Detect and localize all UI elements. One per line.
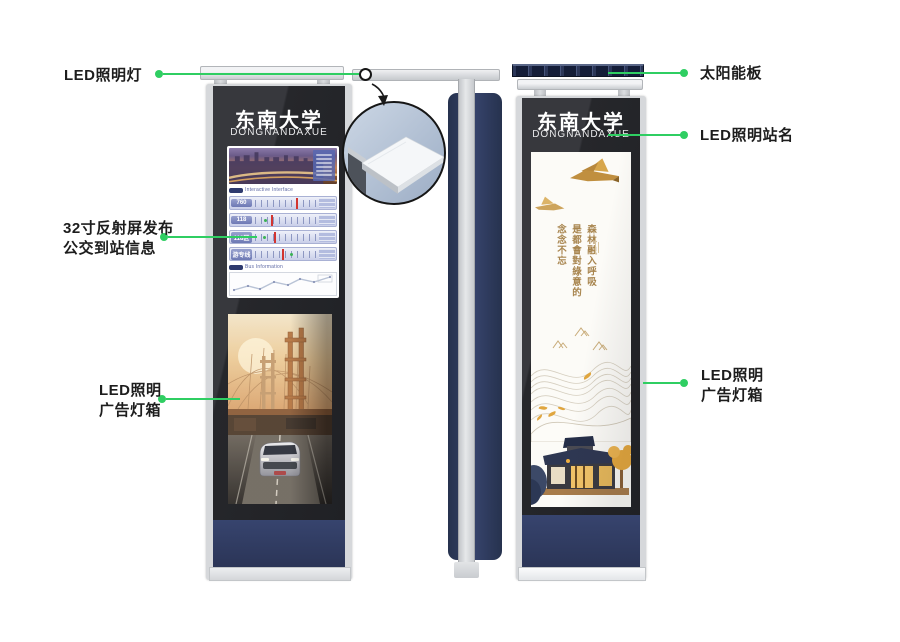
led-panel-illustration — [344, 103, 446, 205]
label-solar: 太阳能板 — [700, 64, 762, 84]
caption-mark — [595, 238, 596, 254]
section-badge — [229, 188, 243, 193]
bus-info-screen: Interactive Interface 760 118 118区 游专线 B… — [227, 146, 339, 298]
bridge-car-ad-image — [228, 314, 332, 504]
solar-panel — [512, 64, 644, 77]
route-number: 760 — [231, 199, 252, 207]
route-detail-box — [319, 249, 335, 259]
label-ad-lightbox-right: LED照明 广告灯箱 — [701, 366, 764, 406]
route-row: 118 — [229, 213, 337, 227]
section-badge — [229, 265, 243, 270]
label-ad-lightbox-left: LED照明 广告灯箱 — [99, 381, 162, 421]
label-station-name: LED照明站名 — [700, 126, 794, 146]
calligraphy-text: 森林融入呼吸 是都會對綠意的 念念不忘 — [552, 224, 597, 304]
route-stops-track — [255, 251, 316, 258]
right-pillar-plinth — [518, 567, 646, 581]
screen-sidebar-menu — [313, 150, 335, 181]
route-map — [229, 272, 337, 296]
leader-dot — [680, 379, 688, 387]
leader-line — [608, 72, 684, 74]
leader-dot — [155, 70, 163, 78]
leader-line — [163, 73, 359, 75]
left-pillar-plinth — [209, 567, 351, 581]
origami-bird-icon — [569, 158, 619, 190]
pole-crossbar — [352, 69, 500, 81]
bus-stop-design-diagram: 东南大学 DONGNANDAXUE Interactive Interface … — [0, 0, 900, 642]
leader-line — [608, 134, 684, 136]
route-stops-track — [255, 217, 316, 224]
pole — [458, 79, 475, 578]
caption-mark — [598, 242, 599, 253]
label-reflective-screen: 32寸反射屏发布 公交到站信息 — [63, 219, 174, 259]
house-illustration — [531, 430, 631, 507]
section-strip: Interactive Interface — [229, 186, 337, 194]
ad-artwork — [228, 314, 332, 504]
leaf-icon — [548, 411, 557, 417]
route-detail-box — [319, 215, 335, 225]
callout-origin-circle — [359, 68, 372, 81]
leaf-icon — [583, 372, 593, 380]
stop-dot — [263, 236, 266, 239]
route-number: 118 — [231, 216, 252, 224]
route-row: 760 — [229, 196, 337, 210]
bus-position-marker — [282, 249, 284, 260]
leaf-icon — [558, 405, 566, 411]
city-skyline-image — [229, 148, 337, 184]
leader-dot — [680, 69, 688, 77]
route-detail-box — [319, 198, 335, 208]
label-led-light: LED照明灯 — [64, 66, 142, 86]
pole-side-panel — [448, 93, 502, 560]
origami-bird-icon — [535, 196, 565, 216]
route-stops-track — [255, 200, 316, 207]
pole-foot — [454, 562, 479, 578]
leader-line — [168, 236, 257, 238]
ad-poster: 森林融入呼吸 是都會對綠意的 念念不忘 — [531, 152, 631, 507]
stop-dot — [290, 253, 293, 256]
route-map-line — [230, 273, 336, 295]
stop-dot — [264, 219, 267, 222]
leader-line — [643, 382, 680, 384]
section-label: Interactive Interface — [245, 187, 293, 193]
mountain-motif-icon — [551, 324, 615, 354]
route-detail-box — [319, 232, 335, 242]
route-row: 游专线 — [229, 247, 337, 261]
leaf-icon — [539, 405, 548, 411]
route-number: 游专线 — [231, 249, 252, 260]
leader-dot — [680, 131, 688, 139]
leader-line — [166, 398, 240, 400]
right-canopy — [517, 79, 643, 90]
section-label: Bus Information — [245, 264, 283, 270]
left-pillar-base — [213, 520, 345, 567]
bus-position-marker — [271, 215, 273, 226]
bus-position-marker — [274, 232, 276, 243]
bus-position-marker — [296, 198, 298, 209]
route-stops-track — [255, 234, 316, 241]
right-pillar-base — [522, 515, 640, 567]
leaf-icon — [536, 414, 543, 420]
detail-callout-circle — [342, 101, 446, 205]
wave-pattern — [531, 348, 631, 442]
section-strip: Bus Information — [229, 263, 337, 271]
left-station-name-en: DONGNANDAXUE — [213, 127, 345, 138]
